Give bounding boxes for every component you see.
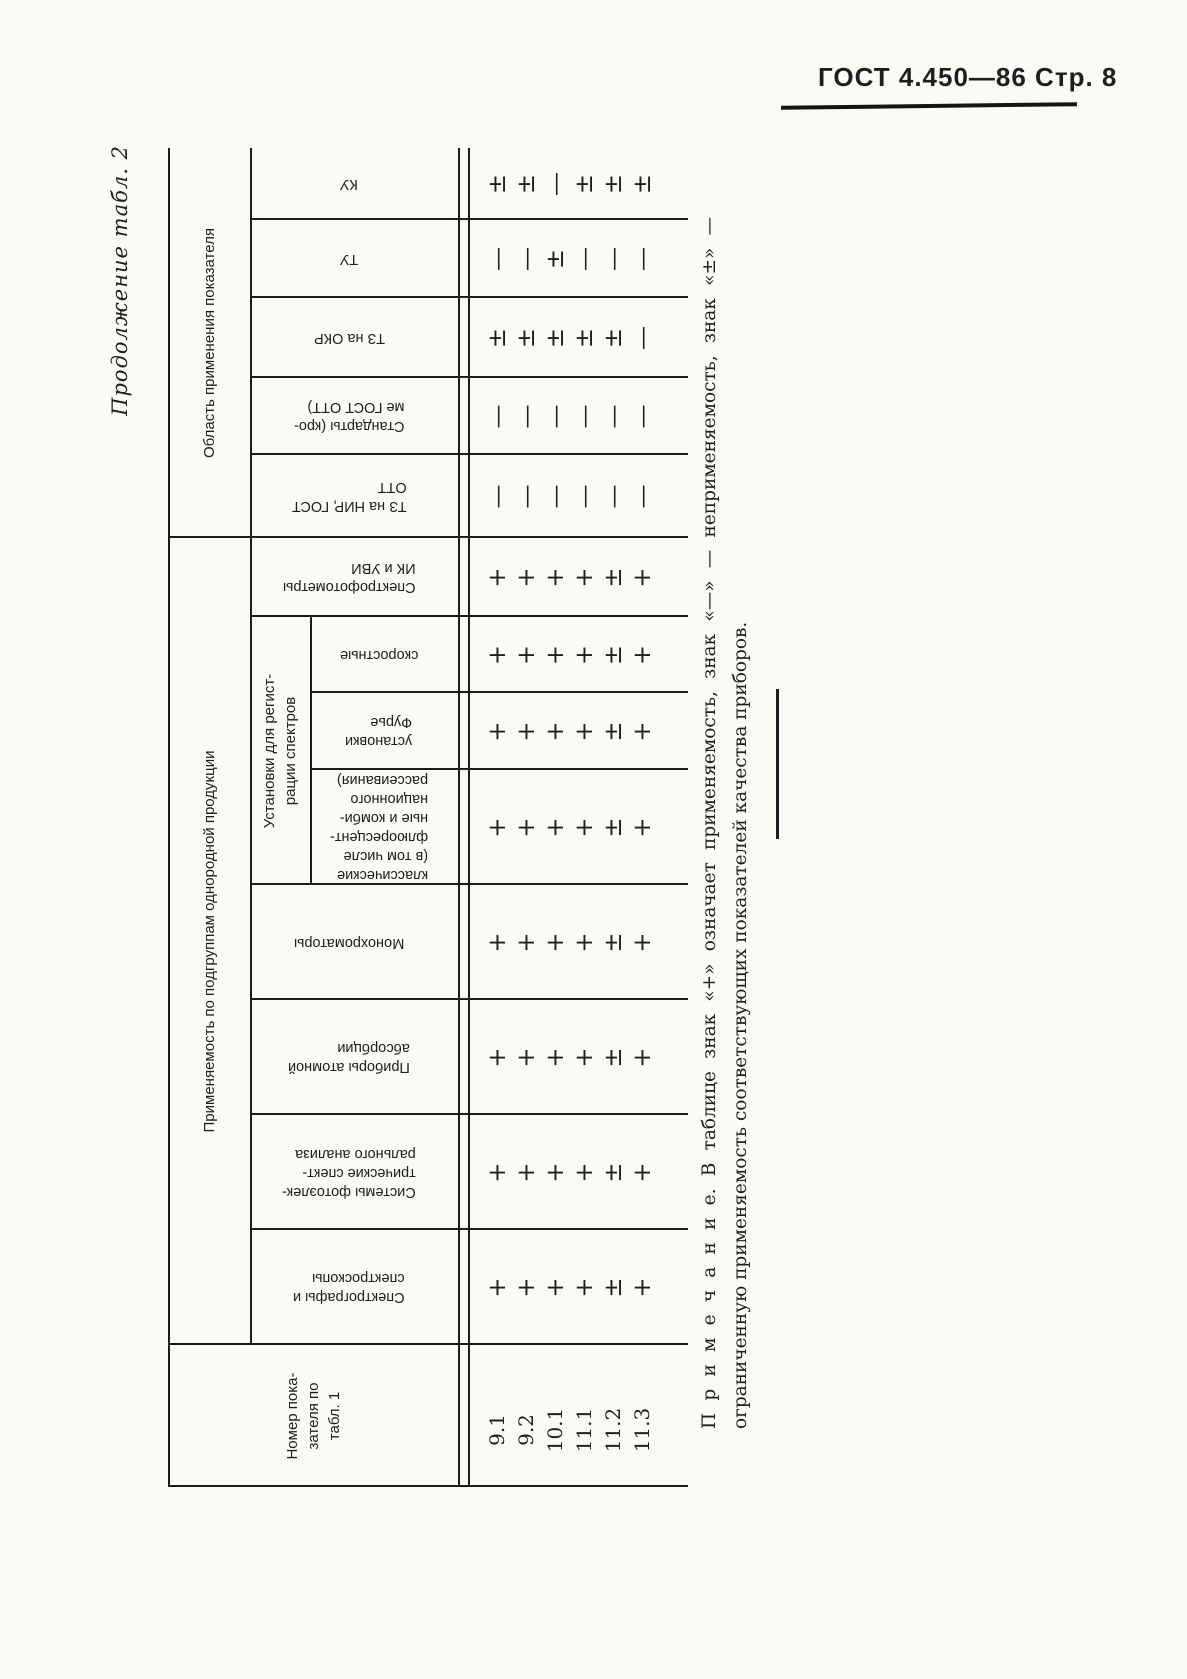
column-header-line: рального анализа <box>282 1144 416 1163</box>
applicability-mark: ± <box>482 148 511 220</box>
column-header-9: ТЗ на НИР, ГОСТОТТ <box>252 457 456 536</box>
applicability-mark: ± <box>540 220 569 298</box>
applicability-mark: — <box>482 378 511 455</box>
applicability-mark: + <box>482 538 511 617</box>
column-header-line: спектроскопы <box>293 1269 405 1288</box>
note-line-1: П р и м е ч а н и е. В таблице знак «+» … <box>694 217 725 1429</box>
applicability-mark: — <box>482 220 511 298</box>
applicability-mark: ± <box>569 148 598 220</box>
column-header-6: установкиФурье <box>312 695 456 768</box>
applicability-mark: ± <box>511 148 540 220</box>
applicability-mark: ± <box>598 298 627 378</box>
applicability-mark: + <box>540 1230 569 1345</box>
applicability-mark: — <box>598 220 627 298</box>
applicability-mark: — <box>598 455 627 538</box>
applicability-mark: + <box>569 617 598 693</box>
applicability-mark: + <box>482 770 511 885</box>
table-grid-line <box>468 148 470 1487</box>
row-label-header-line: табл. 1 <box>324 1372 345 1459</box>
applicability-mark: ± <box>598 693 627 770</box>
column-header-line: ме ГОСТ ОТТ) <box>294 398 405 417</box>
applicability-mark: + <box>482 1230 511 1345</box>
column-header-line: ТЗ на ОКР <box>314 329 385 348</box>
applicability-mark: + <box>627 617 656 693</box>
group-header-application-area: Область применения показателя <box>170 150 248 536</box>
row-label: 9.2 <box>511 1345 540 1487</box>
row-label-header-cell: Номер пока- зателя по табл. 1 <box>170 1347 456 1485</box>
applicability-mark: + <box>511 1230 540 1345</box>
column-header-line: ИК и УВИ <box>283 559 416 578</box>
applicability-mark: ± <box>598 1115 627 1230</box>
applicability-mark: ± <box>598 770 627 885</box>
row-label: 9.1 <box>482 1345 511 1487</box>
column-header-3: Приборы атомнойабсорбции <box>252 1002 456 1113</box>
applicability-mark: + <box>569 1000 598 1115</box>
table-grid-line <box>458 148 460 1487</box>
applicability-mark: + <box>569 538 598 617</box>
applicability-mark: + <box>540 693 569 770</box>
column-header-2: Системы фотоэлек-трические спект-ральног… <box>252 1117 456 1228</box>
applicability-mark: + <box>627 1115 656 1230</box>
applicability-mark: ± <box>569 298 598 378</box>
column-header-line: трические спект- <box>282 1163 416 1182</box>
applicability-mark: ± <box>627 148 656 220</box>
column-header-line: ОТТ <box>292 478 407 497</box>
applicability-mark: + <box>569 1230 598 1345</box>
applicability-mark: + <box>569 770 598 885</box>
applicability-mark: + <box>627 885 656 1000</box>
applicability-mark: — <box>540 378 569 455</box>
applicability-mark: + <box>482 617 511 693</box>
column-header-12: ТУ <box>252 222 456 296</box>
applicability-mark: + <box>627 538 656 617</box>
applicability-mark: + <box>511 693 540 770</box>
applicability-mark: — <box>540 455 569 538</box>
column-header-line: установки <box>345 732 412 751</box>
subgroup-header-line: рации спектров <box>280 674 301 828</box>
table-note: П р и м е ч а н и е. В таблице знак «+» … <box>694 217 756 1429</box>
applicability-mark: + <box>482 1000 511 1115</box>
column-header-line: Фурье <box>345 713 412 732</box>
applicability-mark: ± <box>598 617 627 693</box>
applicability-mark: — <box>569 220 598 298</box>
applicability-mark: ± <box>511 298 540 378</box>
column-header-line: Спектрографы и <box>293 1288 405 1307</box>
applicability-mark: + <box>627 1000 656 1115</box>
applicability-mark: + <box>511 770 540 885</box>
applicability-mark: — <box>627 378 656 455</box>
column-header-line: флюоресцент- <box>330 828 428 847</box>
applicability-mark: — <box>540 148 569 220</box>
column-header-line: ные и комби- <box>330 809 428 828</box>
applicability-mark: + <box>540 1115 569 1230</box>
row-label: 11.3 <box>627 1345 656 1487</box>
applicability-mark: + <box>482 693 511 770</box>
column-header-line: ТЗ на НИР, ГОСТ <box>292 497 407 516</box>
row-label: 10.1 <box>540 1345 569 1487</box>
column-header-line: Спектрофотометры <box>283 578 416 597</box>
applicability-mark: + <box>540 538 569 617</box>
applicability-mark: — <box>482 455 511 538</box>
scanned-standard-page: ГОСТ 4.450—86 Стр. 8 Продолжение табл. 2… <box>0 0 1187 1679</box>
applicability-mark: — <box>511 455 540 538</box>
column-header-line: Монохроматоры <box>294 933 404 952</box>
applicability-mark: — <box>569 378 598 455</box>
applicability-mark: + <box>482 1115 511 1230</box>
applicability-mark: ± <box>598 1000 627 1115</box>
note-line-2: ограниченную применяемость соответствующ… <box>725 217 756 1429</box>
applicability-mark: + <box>540 617 569 693</box>
applicability-mark: — <box>569 455 598 538</box>
column-header-line: Стандарты (кро- <box>294 417 405 436</box>
applicability-mark: + <box>482 885 511 1000</box>
applicability-mark: — <box>598 378 627 455</box>
row-label: 11.2 <box>598 1345 627 1487</box>
column-header-line: рассеивания) <box>330 771 428 790</box>
column-header-13: КУ <box>252 150 456 218</box>
column-header-10: Стандарты (кро-ме ГОСТ ОТТ) <box>252 380 456 453</box>
applicability-mark: — <box>627 455 656 538</box>
column-header-line: абсорбции <box>288 1039 410 1058</box>
applicability-mark: + <box>540 1000 569 1115</box>
column-header-8: СпектрофотометрыИК и УВИ <box>252 540 456 615</box>
applicability-mark: — <box>627 298 656 378</box>
rotated-table-block: Продолжение табл. 2 Номер пока- зателя п… <box>100 79 810 1499</box>
page-header: ГОСТ 4.450—86 Стр. 8 <box>818 62 1117 93</box>
page-header-rule <box>781 102 1077 110</box>
column-header-line: национного <box>330 790 428 809</box>
row-label-header-line: зателя по <box>303 1372 324 1459</box>
table-grid-line <box>168 148 170 1487</box>
applicability-mark: ± <box>598 885 627 1000</box>
applicability-mark: + <box>511 538 540 617</box>
applicability-mark: — <box>511 220 540 298</box>
applicability-mark: + <box>627 1230 656 1345</box>
applicability-mark: ± <box>540 298 569 378</box>
row-label-header-line: Номер пока- <box>282 1372 303 1459</box>
applicability-mark: ± <box>598 1230 627 1345</box>
table-caption: Продолжение табл. 2 <box>108 145 132 416</box>
applicability-mark: ± <box>482 298 511 378</box>
applicability-mark: + <box>511 1000 540 1115</box>
group-header-applicability: Применяемость по подгруппам однородной п… <box>170 540 248 1343</box>
note-end-rule <box>776 689 779 839</box>
row-label: 11.1 <box>569 1345 598 1487</box>
subgroup-header-line: Установки для регист- <box>259 674 280 828</box>
column-header-line: (в том числе <box>330 847 428 866</box>
applicability-mark: + <box>540 885 569 1000</box>
column-header-line: Системы фотоэлек- <box>282 1182 416 1201</box>
column-header-4: Монохроматоры <box>252 887 456 998</box>
applicability-mark: + <box>511 1115 540 1230</box>
applicability-mark: + <box>569 693 598 770</box>
applicability-mark: + <box>511 885 540 1000</box>
applicability-mark: + <box>540 770 569 885</box>
column-header-5: классические(в том числефлюоресцент-ные … <box>312 772 456 883</box>
column-header-11: ТЗ на ОКР <box>252 300 456 376</box>
applicability-mark: ± <box>598 148 627 220</box>
column-header-line: КУ <box>340 175 358 194</box>
applicability-mark: + <box>569 885 598 1000</box>
applicability-mark: — <box>511 378 540 455</box>
column-header-line: классические <box>330 866 428 885</box>
subgroup-header-registration-units: Установки для регист- рации спектров <box>252 619 308 883</box>
applicability-mark: + <box>569 1115 598 1230</box>
applicability-mark: + <box>627 770 656 885</box>
column-header-7: скоростные <box>312 619 456 691</box>
applicability-mark: + <box>511 617 540 693</box>
applicability-mark: — <box>627 220 656 298</box>
column-header-line: Приборы атомной <box>288 1058 410 1077</box>
column-header-line: ТУ <box>340 250 358 269</box>
applicability-mark: ± <box>598 538 627 617</box>
column-header-line: скоростные <box>340 646 418 665</box>
applicability-mark: + <box>627 693 656 770</box>
column-header-1: Спектрографы испектроскопы <box>252 1232 456 1343</box>
